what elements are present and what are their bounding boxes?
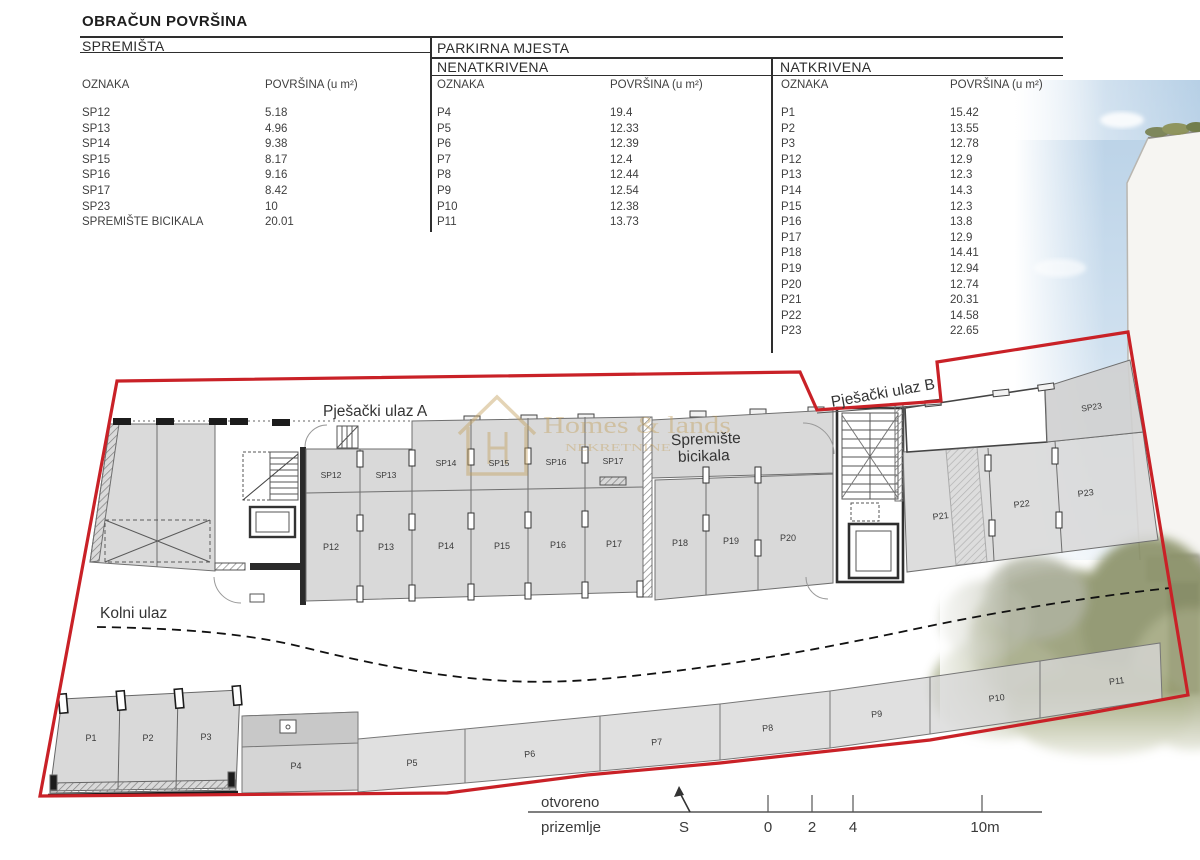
- row-label: P22: [781, 309, 950, 325]
- row-value: 12.3: [950, 168, 972, 184]
- row-label: P12: [781, 153, 950, 169]
- row-value: 15.42: [950, 106, 979, 122]
- plan-space-label: SP13: [376, 470, 397, 480]
- table-spremista: SP125.18SP134.96SP149.38SP158.17SP169.16…: [82, 106, 294, 231]
- row-value: 14.41: [950, 246, 979, 262]
- row-label: P4: [437, 106, 610, 122]
- row-label: P13: [781, 168, 950, 184]
- row-label: P1: [781, 106, 950, 122]
- column-post: [703, 467, 709, 483]
- row-label: P6: [437, 137, 610, 153]
- row-value: 8.17: [265, 153, 287, 169]
- plan-space-label: P6: [524, 749, 536, 760]
- entrance-a-label: Pješački ulaz A: [323, 403, 428, 420]
- plan-space-label: SP17: [603, 456, 624, 466]
- table-row: P1113.73: [437, 215, 639, 231]
- section-title-parkirna: PARKIRNA MJESTA: [437, 40, 569, 56]
- row-label: P11: [437, 215, 610, 231]
- floor-status-label: otvoreno: [541, 794, 599, 811]
- parking-p4: [242, 712, 358, 793]
- table-row: P612.39: [437, 137, 639, 153]
- row-value: 12.3: [950, 200, 972, 216]
- row-label: P5: [437, 122, 610, 138]
- unlabeled-room: [905, 387, 1047, 452]
- column-post: [989, 520, 995, 536]
- column-post: [985, 455, 991, 471]
- column-post: [272, 419, 290, 426]
- row-label: P19: [781, 262, 950, 278]
- plan-space-label: SP14: [436, 458, 457, 468]
- row-label: SP16: [82, 168, 265, 184]
- column-post: [755, 467, 761, 483]
- table-row: P2214.58: [781, 309, 979, 325]
- row-value: 12.74: [950, 278, 979, 294]
- north-arrow-icon: [674, 786, 690, 812]
- subtitle-nenatkrivena: NENATKRIVENA: [437, 59, 548, 75]
- plan-space-label: SP15: [489, 458, 510, 468]
- row-label: SP12: [82, 106, 265, 122]
- plan-space-label: P15: [494, 541, 510, 551]
- table-row: P1312.3: [781, 168, 979, 184]
- row-label: P23: [781, 324, 950, 340]
- table-row: SP2310: [82, 200, 294, 216]
- scale-bar: [768, 795, 982, 812]
- row-value: 9.38: [265, 137, 287, 153]
- column-post: [703, 515, 709, 531]
- corner-post: [228, 772, 235, 787]
- table-row: P115.42: [781, 106, 979, 122]
- table-row: P1613.8: [781, 215, 979, 231]
- row-value: 20.31: [950, 293, 979, 309]
- table-row: P419.4: [437, 106, 639, 122]
- page-title: OBRAČUN POVRŠINA: [82, 13, 248, 30]
- col-header-povrsina: POVRŠINA (u m²): [610, 78, 703, 94]
- row-value: 22.65: [950, 324, 979, 340]
- scale-tick-label: 0: [764, 819, 772, 836]
- bike-room-label: Spremište: [671, 430, 741, 449]
- table-row: P312.78: [781, 137, 979, 153]
- table-divider: [771, 57, 773, 353]
- hatched-wall: [215, 563, 245, 570]
- small-fixture: [280, 720, 296, 733]
- plan-space-label: P22: [1013, 498, 1030, 510]
- row-label: P16: [781, 215, 950, 231]
- table-row: P512.33: [437, 122, 639, 138]
- plan-space-label: P21: [932, 510, 949, 522]
- plan-space-label: SP16: [546, 457, 567, 467]
- table-divider: [430, 36, 432, 232]
- table-natkrivena: P115.42P213.55P312.78P1212.9P1312.3P1414…: [781, 106, 979, 340]
- table-rule: [80, 36, 1063, 38]
- col-header-oznaka: OZNAKA: [781, 78, 950, 94]
- plan-space-label: P19: [723, 536, 739, 546]
- row-label: P3: [781, 137, 950, 153]
- watermark-subtitle: NEKRETNINE: [565, 442, 671, 454]
- table-row: P812.44: [437, 168, 639, 184]
- column-post: [209, 418, 227, 425]
- table-row: P2012.74: [781, 278, 979, 294]
- scale-tick-label: 10m: [970, 819, 999, 836]
- plan-space-label: P10: [988, 692, 1005, 704]
- table-row: SP178.42: [82, 184, 294, 200]
- row-value: 12.9: [950, 231, 972, 247]
- plan-space-label: P11: [1108, 675, 1124, 687]
- table-row: SP134.96: [82, 122, 294, 138]
- left-structure: [90, 424, 215, 571]
- table-header: OZNAKA POVRŠINA (u m²): [437, 78, 703, 94]
- plan-space-label: P3: [200, 732, 211, 742]
- plan-space-label: P1: [85, 733, 96, 743]
- table-row: SP125.18: [82, 106, 294, 122]
- table-nenatkrivena: P419.4P512.33P612.39P712.4P812.44P912.54…: [437, 106, 639, 231]
- north-label: S: [679, 819, 689, 836]
- row-label: P20: [781, 278, 950, 294]
- site-plan-document: Homes & lands NEKRETNINE Pješački ulaz A…: [0, 0, 1200, 860]
- row-value: 12.44: [610, 168, 639, 184]
- row-value: 14.58: [950, 309, 979, 325]
- row-label: P21: [781, 293, 950, 309]
- plan-space-label: P7: [651, 737, 663, 748]
- table-row: P1512.3: [781, 200, 979, 216]
- row-label: SP13: [82, 122, 265, 138]
- row-value: 12.94: [950, 262, 979, 278]
- table-rule: [432, 75, 1063, 76]
- door-arc: [305, 425, 327, 447]
- table-row: P213.55: [781, 122, 979, 138]
- scale-tick-label: 2: [808, 819, 816, 836]
- row-value: 12.39: [610, 137, 639, 153]
- table-row: P2322.65: [781, 324, 979, 340]
- row-label: P17: [781, 231, 950, 247]
- plan-space-label: P4: [290, 761, 301, 771]
- row-value: 12.33: [610, 122, 639, 138]
- table-header: OZNAKA POVRŠINA (u m²): [82, 78, 358, 94]
- plan-space-label: P18: [672, 538, 688, 548]
- plan-space-label: P23: [1077, 487, 1094, 499]
- table-row: SPREMIŠTE BICIKALA20.01: [82, 215, 294, 231]
- scale-tick-label: 4: [849, 819, 857, 836]
- row-label: SP17: [82, 184, 265, 200]
- corner-post: [50, 775, 57, 790]
- row-label: SP15: [82, 153, 265, 169]
- col-header-oznaka: OZNAKA: [82, 78, 265, 94]
- col-header-oznaka: OZNAKA: [437, 78, 610, 94]
- row-value: 14.3: [950, 184, 972, 200]
- row-value: 12.54: [610, 184, 639, 200]
- row-label: P10: [437, 200, 610, 216]
- row-label: SP14: [82, 137, 265, 153]
- row-value: 12.78: [950, 137, 979, 153]
- row-label: P15: [781, 200, 950, 216]
- hatched-wall: [895, 405, 903, 501]
- col-header-povrsina: POVRŠINA (u m²): [950, 78, 1043, 94]
- column-post: [156, 418, 174, 425]
- plan-space-label: P9: [871, 708, 883, 719]
- plan-space-label: P16: [550, 540, 566, 550]
- row-value: 5.18: [265, 106, 287, 122]
- plan-space-label: P8: [762, 722, 774, 733]
- table-row: P912.54: [437, 184, 639, 200]
- table-row: P2120.31: [781, 293, 979, 309]
- table-row: P1012.38: [437, 200, 639, 216]
- row-label: P2: [781, 122, 950, 138]
- table-row: P1712.9: [781, 231, 979, 247]
- row-label: P9: [437, 184, 610, 200]
- plan-space-label: P2: [142, 733, 153, 743]
- column-post: [230, 418, 248, 425]
- plan-space-label: P17: [606, 539, 622, 549]
- row-value: 13.8: [950, 215, 972, 231]
- plan-space-label: P12: [323, 542, 339, 552]
- col-header-povrsina: POVRŠINA (u m²): [265, 78, 358, 94]
- thick-wall: [250, 563, 302, 570]
- subtitle-natkrivena: NATKRIVENA: [780, 59, 871, 75]
- row-value: 12.4: [610, 153, 632, 169]
- entrance-a-steps: [337, 426, 358, 448]
- table-row: P1814.41: [781, 246, 979, 262]
- row-value: 4.96: [265, 122, 287, 138]
- row-label: P7: [437, 153, 610, 169]
- door-arc: [214, 577, 241, 603]
- row-label: SP23: [82, 200, 265, 216]
- table-header: OZNAKA POVRŠINA (u m²): [781, 78, 1043, 94]
- bike-room-label: bicikala: [678, 447, 731, 466]
- column-post: [1056, 512, 1062, 528]
- table-row: P1212.9: [781, 153, 979, 169]
- row-label: P18: [781, 246, 950, 262]
- parking-band: [358, 643, 1162, 792]
- row-value: 13.73: [610, 215, 639, 231]
- row-value: 12.9: [950, 153, 972, 169]
- row-label: P14: [781, 184, 950, 200]
- row-value: 20.01: [265, 215, 294, 231]
- table-row: P1912.94: [781, 262, 979, 278]
- plan-space-label: SP12: [321, 470, 342, 480]
- row-value: 12.38: [610, 200, 639, 216]
- thick-wall: [300, 447, 306, 605]
- table-row: P1414.3: [781, 184, 979, 200]
- table-row: SP169.16: [82, 168, 294, 184]
- vehicle-entrance-label: Kolni ulaz: [100, 605, 167, 622]
- legend: otvoreno prizemlje S 0 2 4 10m: [528, 786, 1042, 836]
- column-post: [113, 418, 131, 425]
- row-value: 8.42: [265, 184, 287, 200]
- plan-space-label: P5: [406, 758, 417, 768]
- row-value: 13.55: [950, 122, 979, 138]
- row-label: P8: [437, 168, 610, 184]
- table-row: SP149.38: [82, 137, 294, 153]
- vent: [600, 477, 626, 485]
- row-label: SPREMIŠTE BICIKALA: [82, 215, 265, 231]
- row-value: 9.16: [265, 168, 287, 184]
- small-fixture: [250, 594, 264, 602]
- floor-name-label: prizemlje: [541, 819, 601, 836]
- row-value: 10: [265, 200, 278, 216]
- column-post: [1052, 448, 1058, 464]
- plan-space-label: P14: [438, 541, 454, 551]
- section-title-spremista: SPREMIŠTA: [82, 38, 165, 54]
- plan-space-label: P13: [378, 542, 394, 552]
- row-value: 19.4: [610, 106, 632, 122]
- table-row: SP158.17: [82, 153, 294, 169]
- table-row: P712.4: [437, 153, 639, 169]
- plan-space-label: P20: [780, 533, 796, 543]
- column-post: [755, 540, 761, 556]
